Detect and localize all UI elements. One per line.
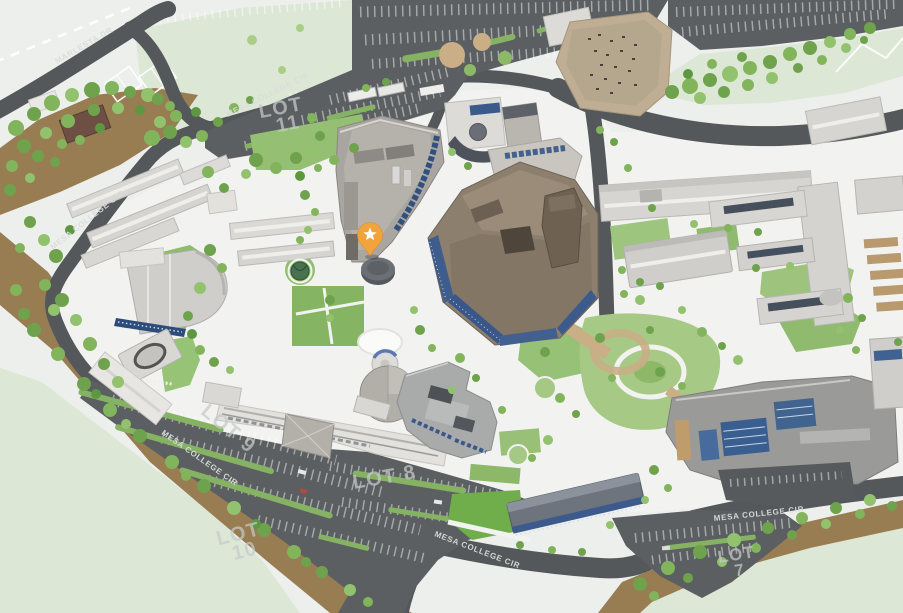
campus-map-container: MARLESTA DR MESA COLLEGE CIR MESA COLLEG… [0, 0, 903, 613]
building-round-forum[interactable] [361, 258, 395, 286]
building-far-east[interactable] [855, 176, 903, 214]
gazebo[interactable] [289, 260, 312, 283]
marker-shadow [365, 255, 379, 260]
svg-text:11: 11 [274, 111, 302, 137]
building-square-small[interactable] [207, 190, 238, 214]
building-east-edge[interactable] [870, 337, 903, 409]
building-north-annex[interactable] [502, 103, 541, 147]
campus-map: MARLESTA DR MESA COLLEGE CIR MESA COLLEG… [0, 0, 903, 613]
